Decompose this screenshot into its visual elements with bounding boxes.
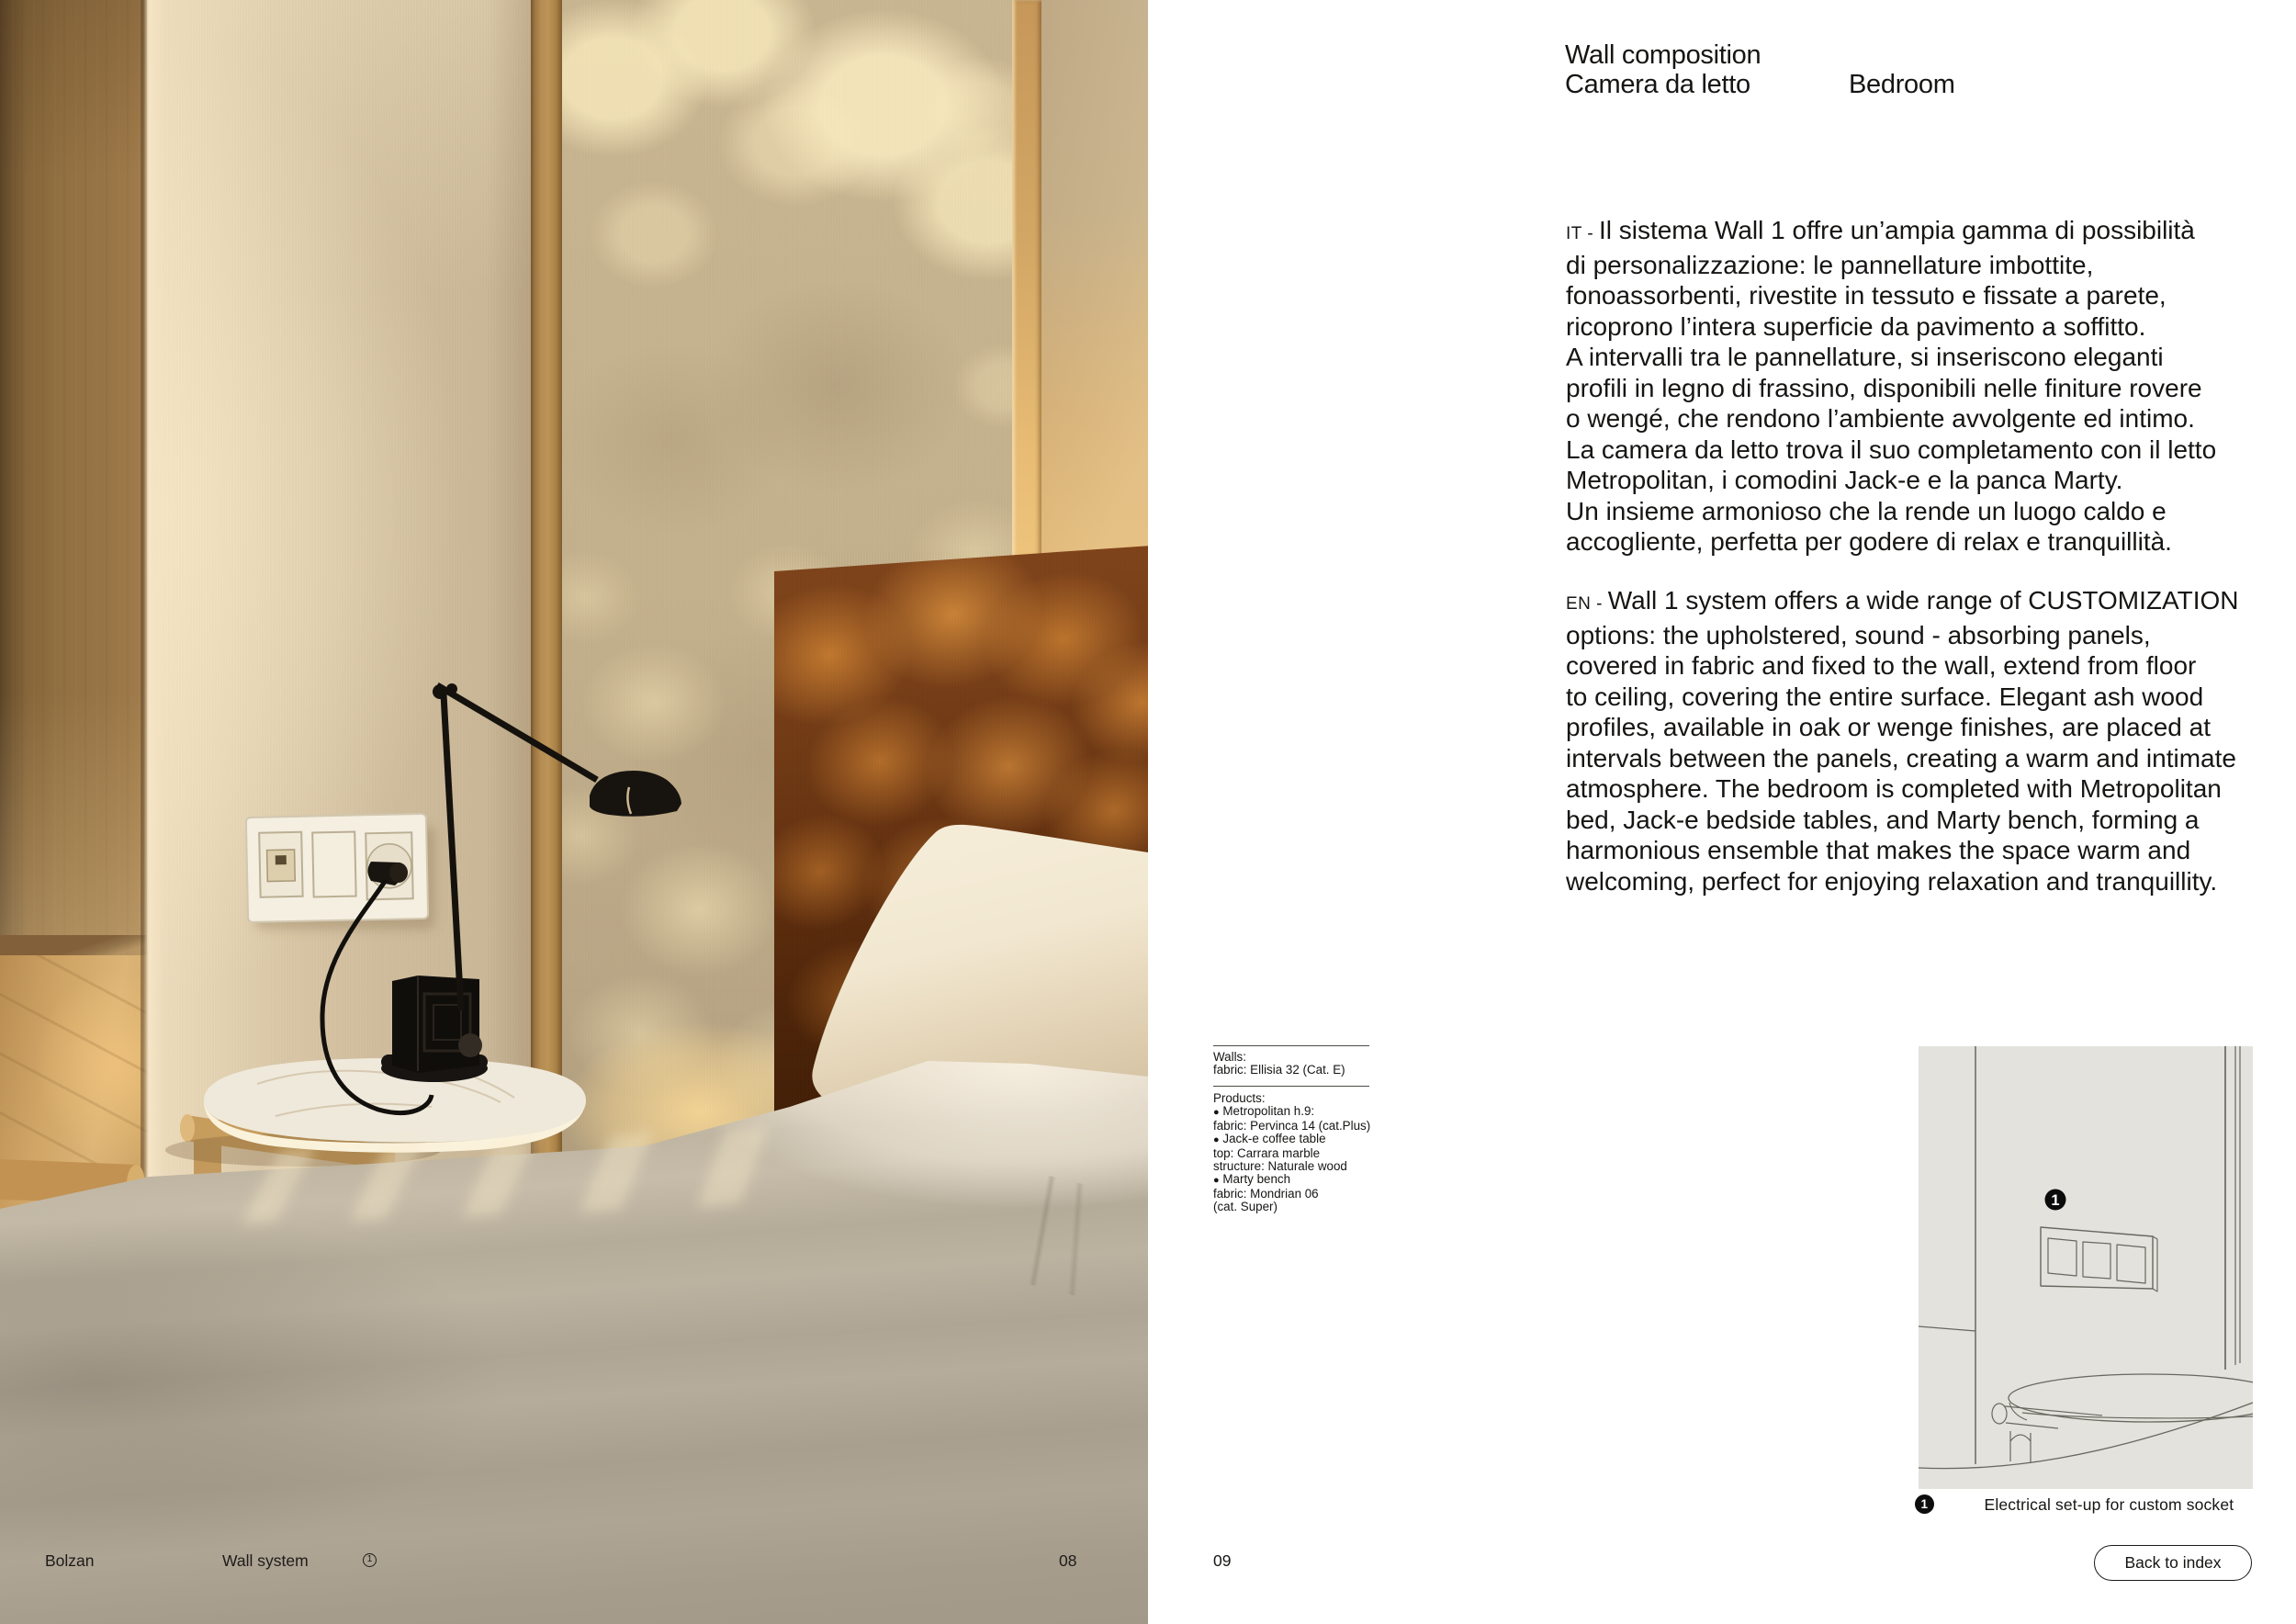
svg-text:1: 1 — [2051, 1192, 2059, 1209]
